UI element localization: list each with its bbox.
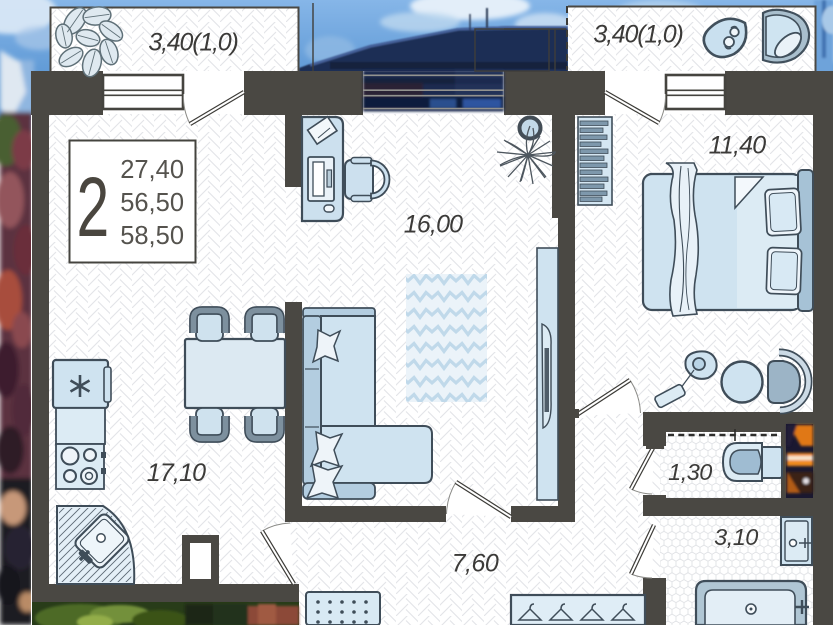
svg-text:3,10: 3,10 — [714, 524, 758, 550]
svg-text:3,40(1,0): 3,40(1,0) — [148, 29, 237, 57]
svg-text:58,50: 58,50 — [120, 222, 184, 250]
svg-text:16,00: 16,00 — [404, 211, 463, 239]
svg-text:2: 2 — [77, 161, 110, 255]
svg-text:56,50: 56,50 — [120, 189, 184, 217]
svg-text:3,40(1,0): 3,40(1,0) — [593, 21, 682, 49]
svg-text:17,10: 17,10 — [147, 459, 206, 487]
svg-text:11,40: 11,40 — [709, 132, 767, 160]
svg-text:7,60: 7,60 — [452, 550, 499, 578]
svg-text:27,40: 27,40 — [120, 156, 184, 184]
svg-text:1,30: 1,30 — [668, 459, 712, 485]
